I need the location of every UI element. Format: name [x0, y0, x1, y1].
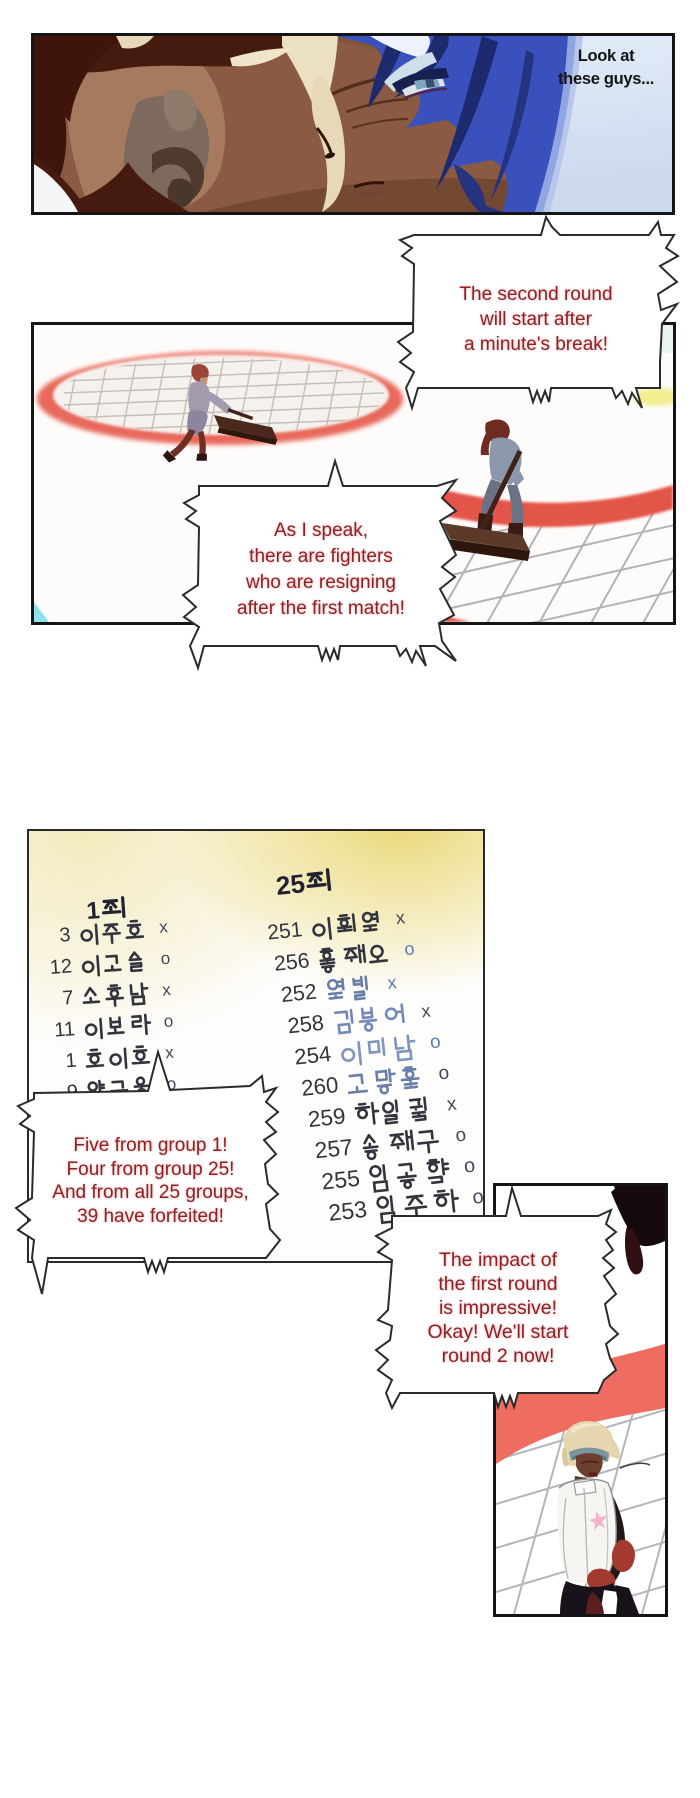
- svg-text:259: 259: [307, 1103, 347, 1132]
- svg-text:257: 257: [313, 1134, 353, 1164]
- svg-text:11: 11: [54, 1018, 76, 1041]
- svg-text:o: o: [454, 1125, 467, 1147]
- svg-text:o: o: [437, 1062, 450, 1084]
- svg-text:o: o: [160, 949, 171, 969]
- svg-text:x: x: [159, 917, 169, 937]
- svg-text:255: 255: [320, 1165, 361, 1195]
- svg-text:25: 25: [274, 868, 306, 901]
- svg-text:12: 12: [49, 955, 73, 978]
- svg-text:256: 256: [273, 948, 311, 976]
- svg-text:260: 260: [300, 1072, 340, 1101]
- svg-text:252: 252: [280, 980, 318, 1008]
- svg-text:7: 7: [62, 987, 75, 1010]
- svg-text:254: 254: [293, 1041, 332, 1070]
- svg-text:258: 258: [286, 1010, 325, 1039]
- svg-text:o: o: [429, 1031, 442, 1053]
- svg-text:x: x: [386, 972, 397, 993]
- svg-text:o: o: [403, 938, 415, 959]
- svg-text:253: 253: [327, 1196, 368, 1226]
- svg-text:251: 251: [266, 918, 303, 945]
- svg-text:1: 1: [86, 897, 101, 925]
- svg-text:x: x: [446, 1094, 458, 1116]
- svg-text:o: o: [163, 1011, 174, 1031]
- svg-text:x: x: [420, 1000, 431, 1021]
- svg-text:x: x: [162, 980, 172, 1000]
- svg-text:3: 3: [59, 924, 72, 947]
- svg-text:x: x: [395, 907, 406, 928]
- svg-text:o: o: [463, 1155, 476, 1178]
